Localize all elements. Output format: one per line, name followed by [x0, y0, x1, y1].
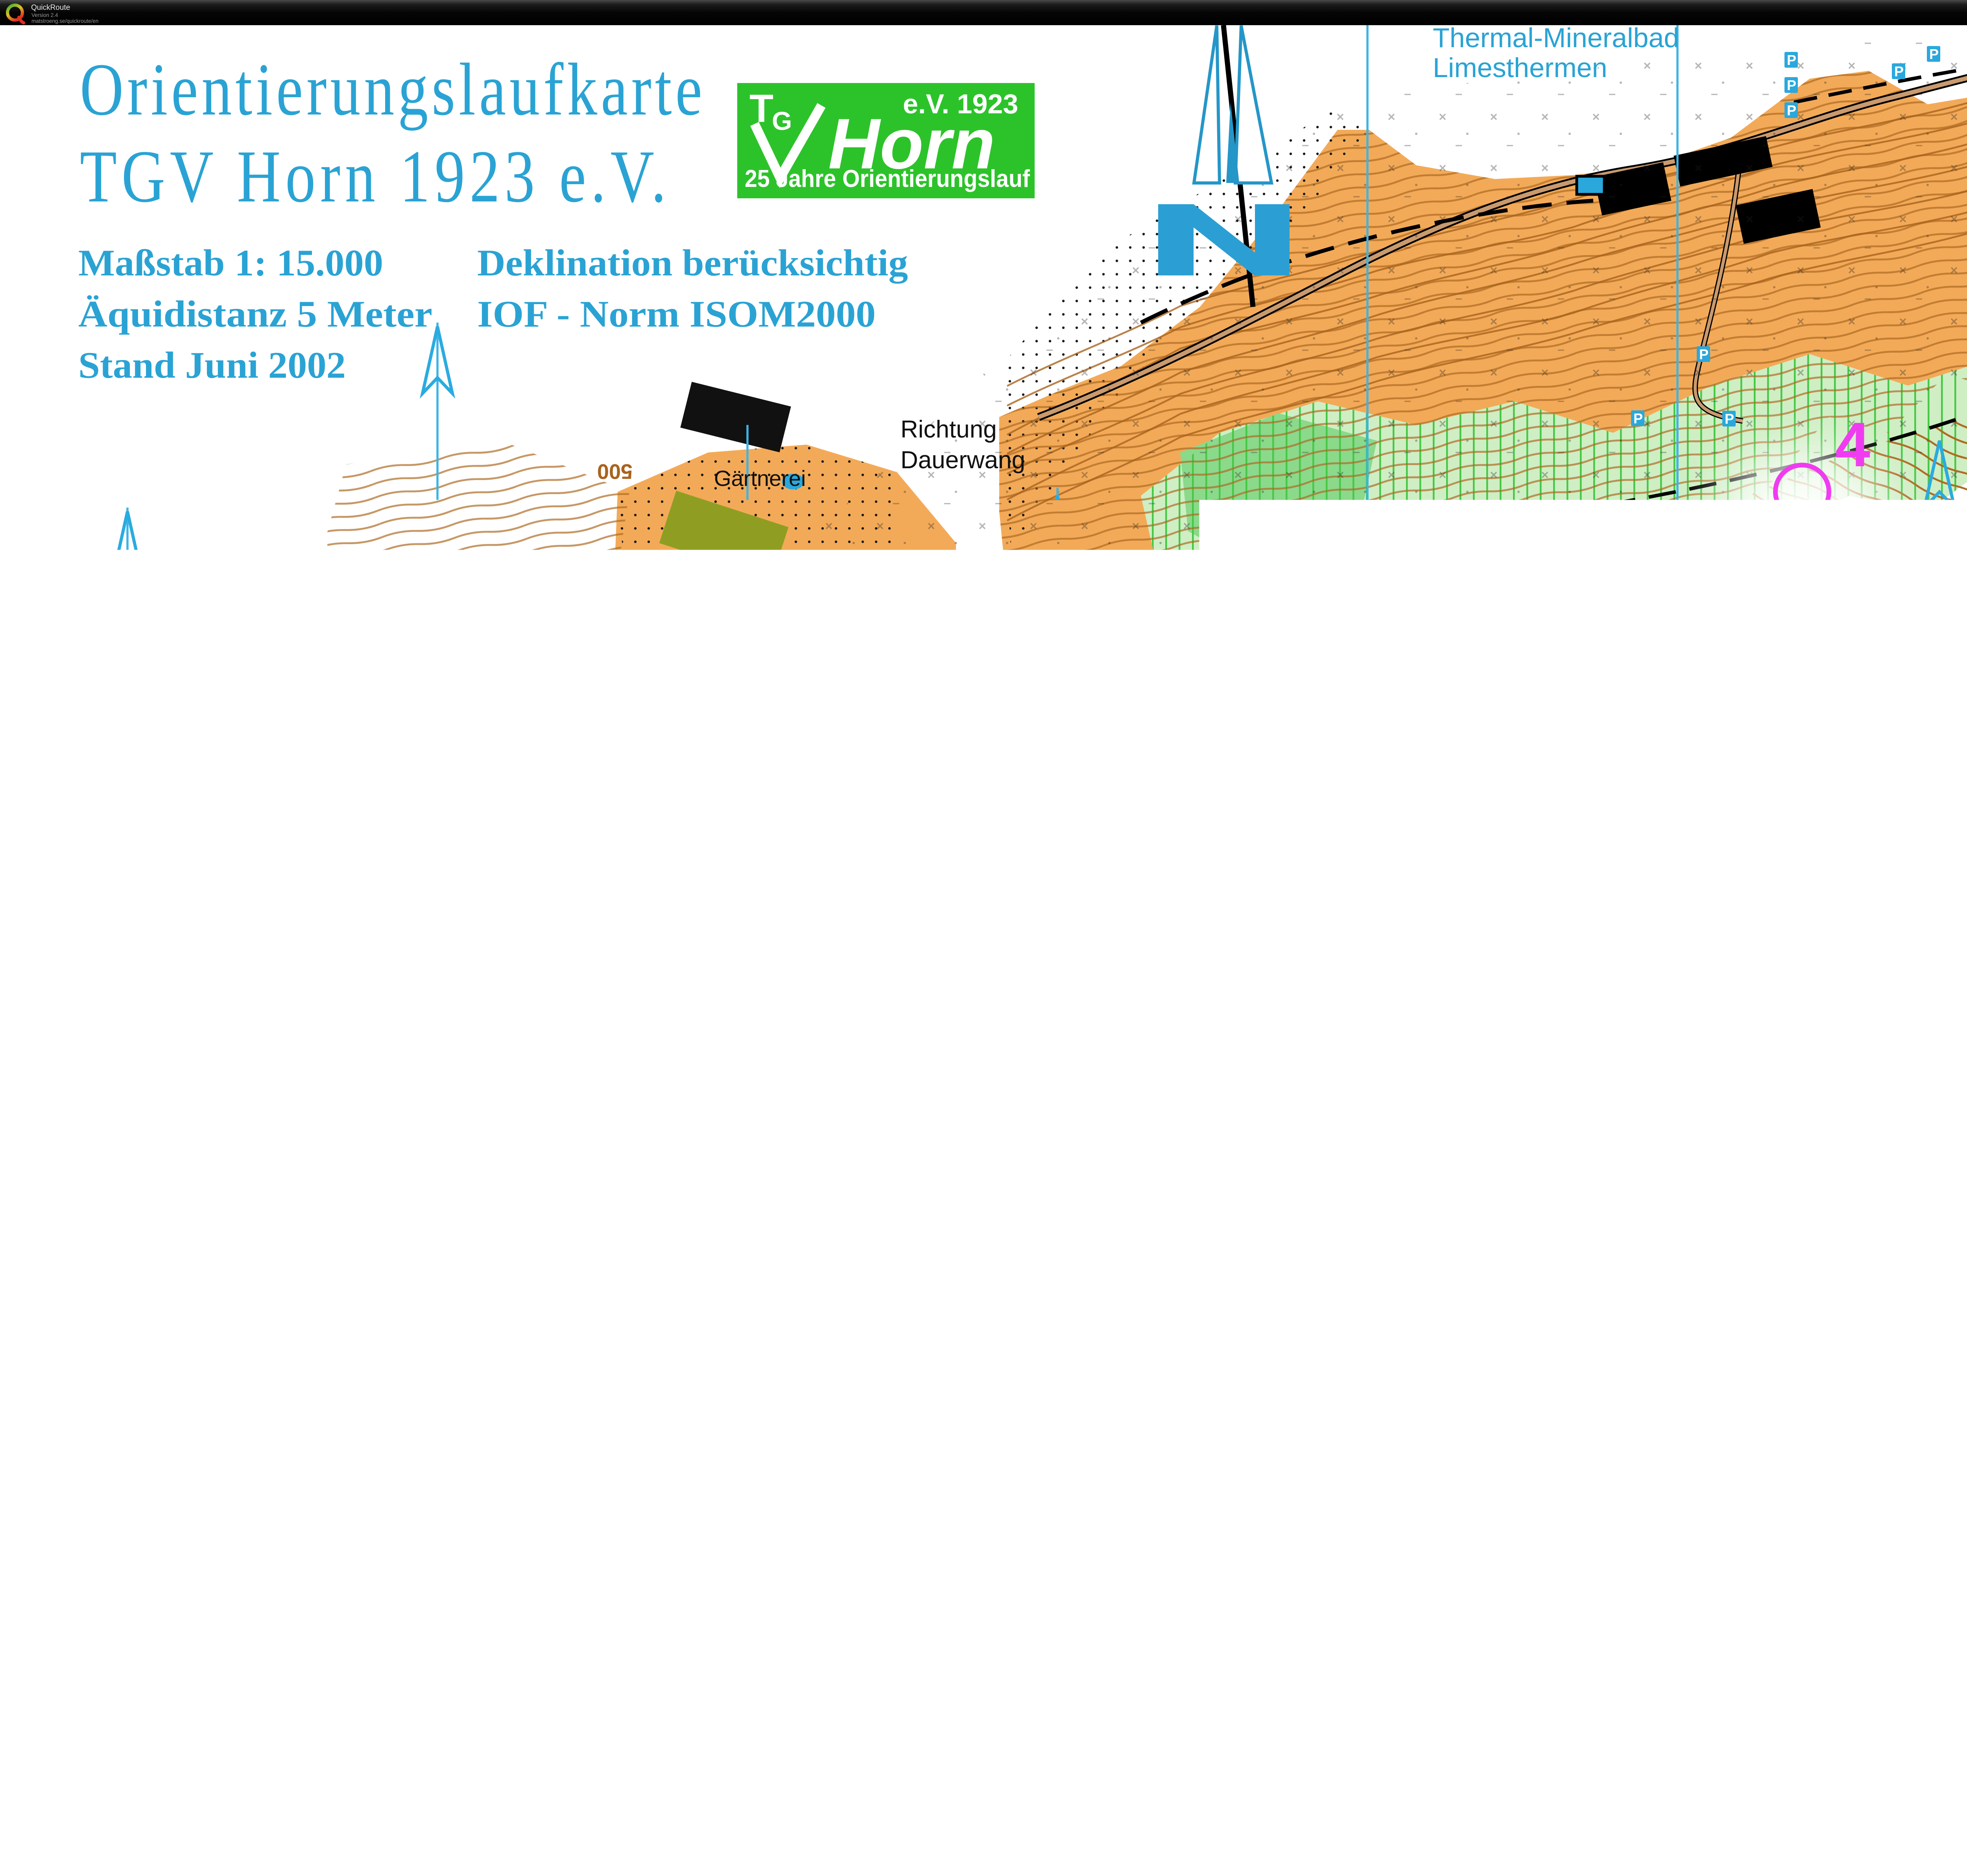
- svg-text:Dauerwang: Dauerwang: [900, 447, 1025, 474]
- svg-text:Maßstab 1: 15.000: Maßstab 1: 15.000: [78, 242, 383, 284]
- svg-text:500: 500: [597, 460, 633, 483]
- svg-text:750: 750: [571, 1832, 612, 1859]
- svg-text:Limesthermen: Limesthermen: [1433, 52, 1607, 83]
- svg-text:650: 650: [336, 1578, 374, 1603]
- svg-text:31-422 KRAKÓW, ul.Strzelców 9/: 31-422 KRAKÓW, ul.Strzelców 9/21: [1918, 1678, 1967, 1700]
- svg-text:5: 5: [1792, 870, 1827, 940]
- svg-text:Essingen: Essingen: [25, 1353, 141, 1384]
- svg-text:8: 8: [397, 978, 432, 1048]
- svg-text:650: 650: [197, 1477, 235, 1502]
- svg-text:3: 3: [1196, 765, 1231, 836]
- svg-text:6: 6: [1058, 1182, 1093, 1253]
- svg-text:IOF - Norm ISOM2000: IOF - Norm ISOM2000: [477, 293, 876, 335]
- svg-text:P: P: [1787, 77, 1796, 93]
- svg-text:MARIUSZ SKORUPA: MARIUSZ SKORUPA: [1954, 1623, 1967, 1652]
- svg-text:Äquidistanz 5 Meter: Äquidistanz 5 Meter: [78, 293, 432, 335]
- svg-text:9: 9: [629, 1198, 664, 1269]
- svg-text:250: 250: [260, 1832, 301, 1859]
- svg-text:50: 50: [146, 1832, 173, 1859]
- svg-text:Teußenberg: Teußenberg: [354, 1202, 489, 1230]
- svg-text:100: 100: [173, 1832, 214, 1859]
- svg-text:P: P: [1787, 52, 1796, 68]
- svg-text:Deklination berücksichtig: Deklination berücksichtig: [477, 242, 908, 284]
- svg-text:0: 0: [123, 1832, 136, 1859]
- svg-text:2: 2: [1501, 1411, 1536, 1481]
- svg-text:600: 600: [1516, 1825, 1555, 1851]
- svg-text:7: 7: [685, 761, 720, 832]
- svg-text:4: 4: [1835, 409, 1870, 480]
- svg-text:T: T: [749, 87, 773, 131]
- svg-text:e.V. 1923: e.V. 1923: [903, 89, 1018, 119]
- svg-text:Stand Juni 2002: Stand Juni 2002: [78, 344, 346, 386]
- svg-text:550: 550: [1100, 739, 1135, 762]
- svg-text:P: P: [1725, 411, 1734, 427]
- svg-text:500: 500: [415, 1832, 456, 1859]
- svg-text:Gärtnerei: Gärtnerei: [714, 466, 806, 491]
- svg-text:525: 525: [567, 690, 603, 713]
- svg-text:matstroeng.se/quickroute/en: matstroeng.se/quickroute/en: [31, 18, 98, 24]
- svg-text:Version 2.4: Version 2.4: [31, 12, 58, 18]
- svg-text:1 cm der Karte entsprechen 150: 1 cm der Karte entsprechen 150 Meter in …: [145, 1800, 786, 1831]
- svg-text:QuickRoute: QuickRoute: [31, 4, 70, 12]
- svg-text:25 Jahre Orientierungslauf: 25 Jahre Orientierungslauf: [745, 165, 1030, 192]
- svg-text:Orientierungslaufkarte: Orientierungslaufkarte: [80, 48, 702, 131]
- svg-text:1000 Meter: 1000 Meter: [730, 1832, 853, 1859]
- svg-text:P: P: [1929, 46, 1939, 62]
- svg-text:Thermal-Mineralbad: Thermal-Mineralbad: [1433, 22, 1679, 53]
- svg-text:Richtung: Richtung: [900, 416, 997, 443]
- svg-text:G: G: [772, 106, 792, 135]
- svg-text:e-mail:magdanowaks@poczta.onet: e-mail:magdanowaks@poczta.onet.pl: [1920, 1719, 1967, 1739]
- svg-text:P: P: [1787, 102, 1796, 118]
- svg-text:P: P: [1894, 63, 1904, 79]
- svg-text:P: P: [1699, 346, 1709, 362]
- svg-text:1: 1: [960, 1627, 995, 1698]
- svg-text:P: P: [1633, 410, 1643, 427]
